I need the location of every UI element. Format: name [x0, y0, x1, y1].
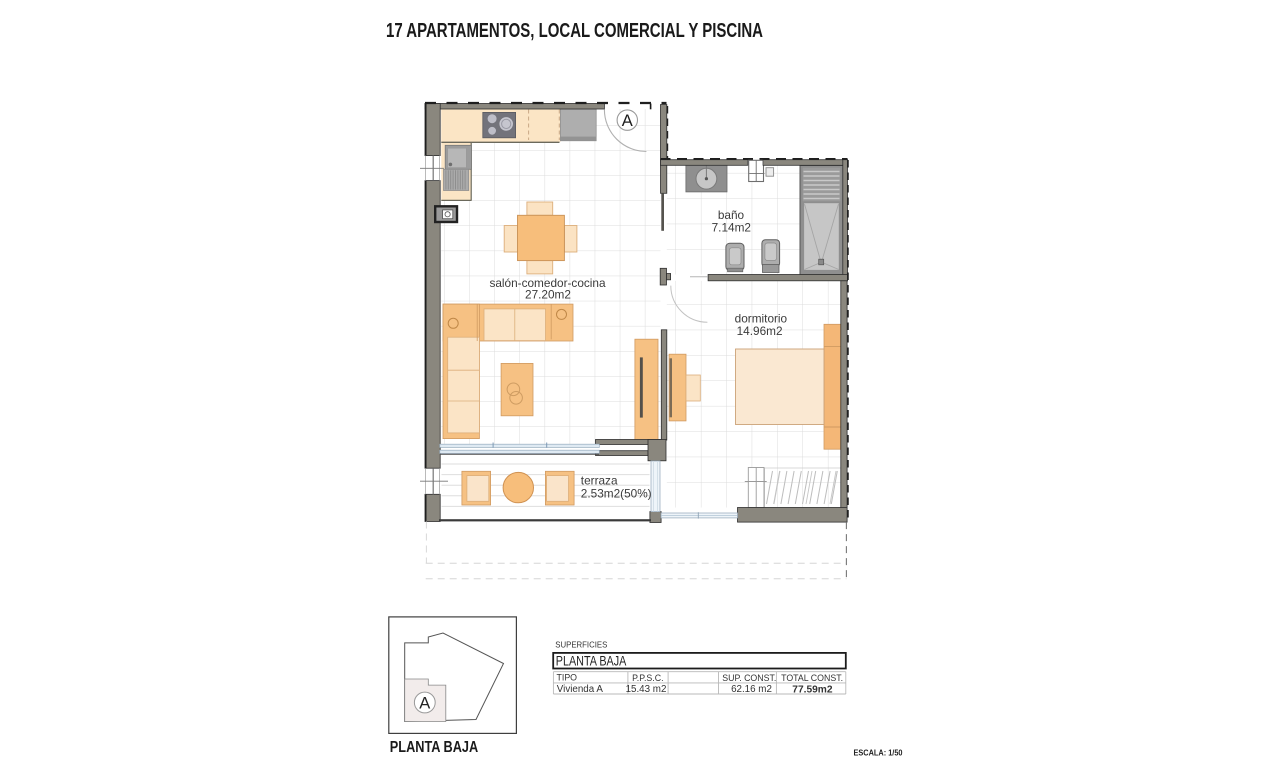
svg-text:62.16 m2: 62.16 m2 [731, 684, 772, 695]
svg-text:77.59m2: 77.59m2 [792, 684, 833, 695]
svg-text:P.P.S.C.: P.P.S.C. [632, 673, 663, 683]
svg-text:A: A [622, 112, 633, 130]
svg-text:PLANTA BAJA: PLANTA BAJA [390, 739, 478, 756]
svg-text:27.20m2: 27.20m2 [525, 287, 571, 301]
svg-text:A: A [419, 695, 430, 713]
svg-text:SUP. CONST.: SUP. CONST. [722, 673, 776, 683]
svg-text:Vivienda A: Vivienda A [557, 684, 604, 695]
svg-text:terraza: terraza [581, 473, 618, 487]
svg-text:17 APARTAMENTOS, LOCAL COMERCI: 17 APARTAMENTOS, LOCAL COMERCIAL Y PISCI… [386, 20, 763, 42]
svg-text:15.43 m2: 15.43 m2 [626, 684, 667, 695]
svg-text:SUPERFICIES: SUPERFICIES [555, 640, 607, 650]
svg-text:TOTAL CONST.: TOTAL CONST. [781, 673, 843, 683]
svg-text:PLANTA BAJA: PLANTA BAJA [556, 654, 627, 669]
svg-text:14.96m2: 14.96m2 [737, 324, 783, 338]
svg-text:7.14m2: 7.14m2 [712, 220, 751, 234]
svg-text:2.53m2(50%): 2.53m2(50%) [581, 487, 652, 501]
svg-text:TIPO: TIPO [557, 673, 578, 683]
svg-text:ESCALA: 1/50: ESCALA: 1/50 [854, 748, 903, 757]
